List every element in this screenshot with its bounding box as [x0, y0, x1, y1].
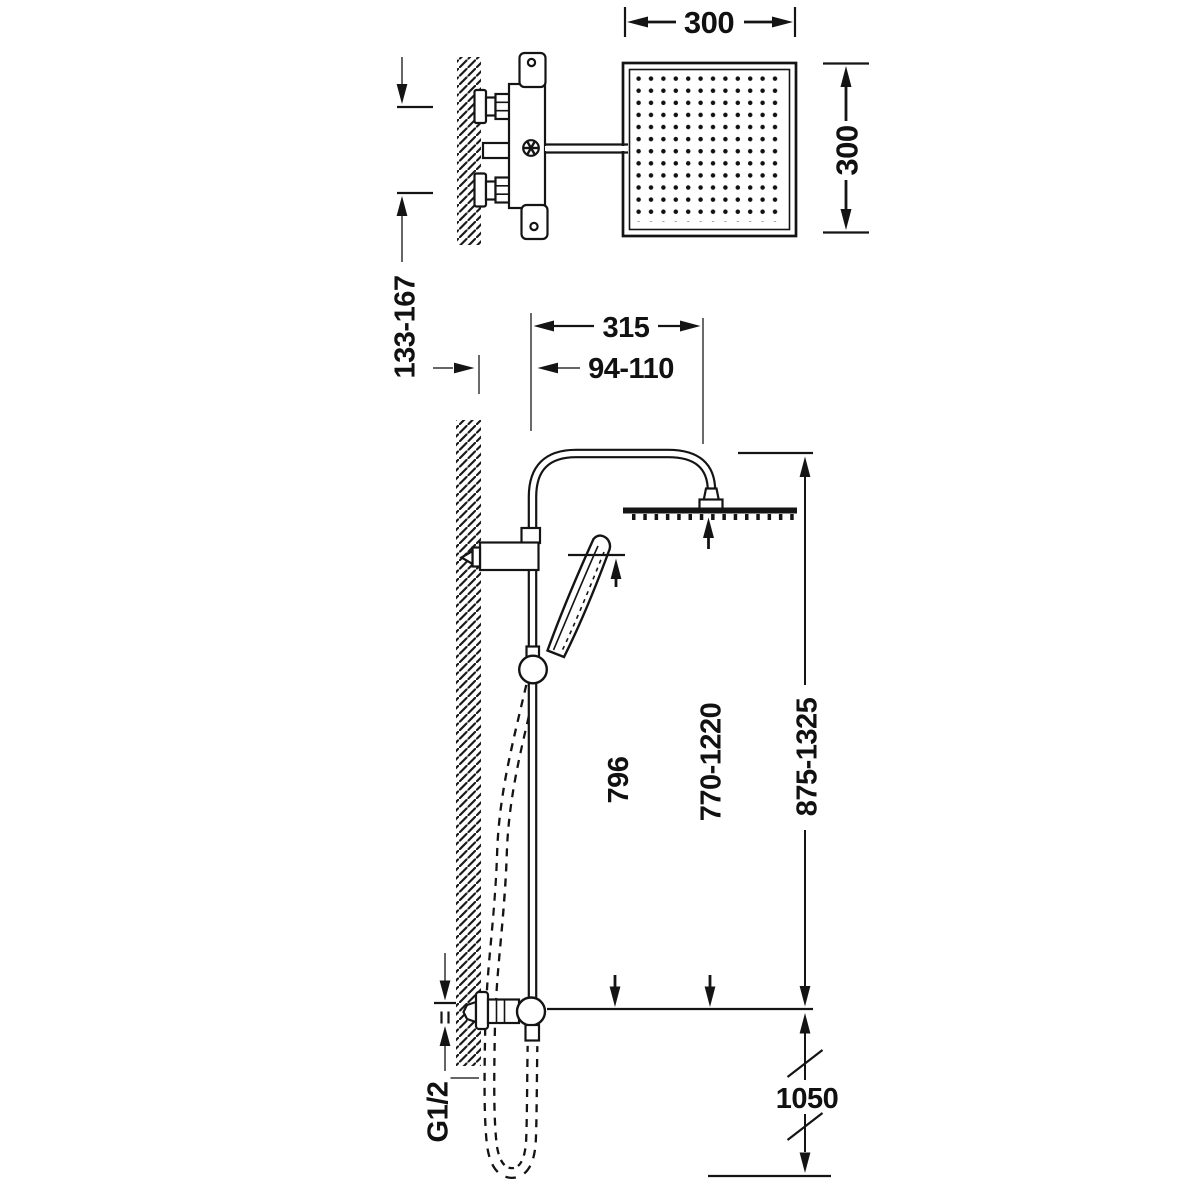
screw-hole-bottom	[530, 223, 537, 230]
dimension-supply-spacing: 133-167	[390, 57, 434, 378]
valve-body-side	[480, 543, 539, 571]
riser-and-gooseneck	[533, 454, 712, 1015]
valve-body-plan	[483, 53, 548, 239]
holder-knob	[519, 656, 547, 684]
rain-head-side	[623, 489, 797, 518]
riser-clamp	[522, 528, 541, 543]
nozzle-grid	[636, 76, 783, 222]
column-height-label: 875-1325	[792, 697, 824, 816]
rainhead-height-label: 770-1220	[696, 703, 728, 822]
dimension-arm-projection: 315	[534, 312, 701, 344]
side-view: 315 94-110	[423, 312, 839, 1176]
bar-length-label: 796	[603, 756, 635, 803]
handshower-hose	[489, 686, 532, 1173]
shower-dimension-diagram: 300 300 133-167	[0, 0, 1200, 1200]
dimension-head-width: 300	[625, 5, 795, 40]
supply-ball-joint	[517, 998, 545, 1026]
dimension-connection-thread: G1/2	[423, 1078, 480, 1142]
head-plate	[623, 508, 797, 514]
dimension-head-depth: 300	[823, 64, 869, 233]
rain-head-plan	[623, 63, 796, 236]
wall-hatch-top	[457, 57, 481, 245]
supply-spacing-label: 133-167	[390, 276, 422, 379]
dimension-rainhead-height: 770-1220	[696, 518, 728, 1008]
supply-inlet-lower	[475, 174, 514, 207]
diagram-canvas: 300 300 133-167	[0, 0, 1200, 1200]
dimension-column-height: 875-1325	[738, 453, 824, 1007]
shower-arm-plan	[545, 145, 628, 153]
supply-inlet-upper	[475, 90, 514, 123]
dimension-supply-height: 1050	[776, 1013, 839, 1173]
dimension-fitting-detail	[434, 953, 456, 1071]
hose-collar	[526, 1025, 540, 1041]
connection-thread-label: G1/2	[423, 1082, 455, 1143]
arm-projection-label: 315	[603, 312, 650, 344]
head-width-label: 300	[684, 5, 734, 40]
handshower-holder	[519, 647, 547, 684]
supply-body	[488, 1000, 519, 1024]
supply-height-label: 1050	[776, 1083, 839, 1115]
supply-flange	[476, 992, 488, 1029]
screw-hole-top	[528, 59, 535, 66]
wall-to-riser-label: 94-110	[588, 353, 674, 385]
dimension-bar-length: 796	[603, 756, 635, 1007]
dimension-bar-length-top-arrow	[611, 559, 622, 588]
center-screw	[523, 140, 539, 156]
handshower-handle	[548, 536, 611, 657]
wall-union	[473, 548, 481, 567]
head-depth-label: 300	[830, 125, 865, 175]
wall-hatch-side	[456, 420, 481, 1066]
dimension-wall-to-riser: 94-110	[433, 353, 674, 385]
